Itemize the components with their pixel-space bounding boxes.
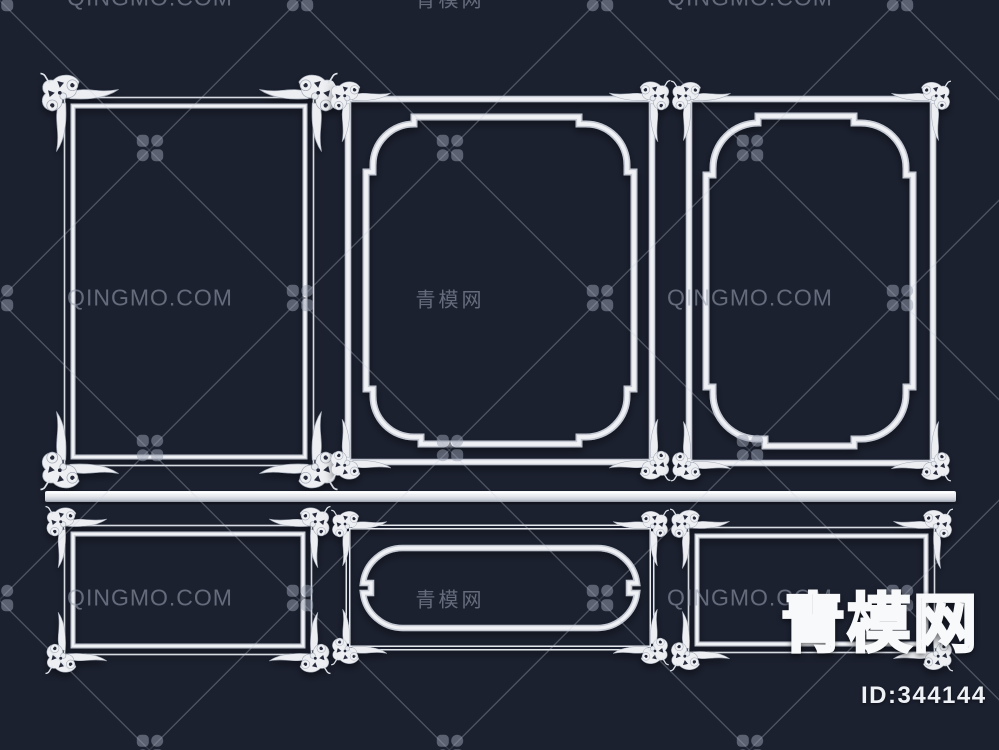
corner-ornament-icon <box>40 411 118 489</box>
corner-ornament-icon <box>891 421 951 481</box>
frame-bottom-left-small-rect <box>46 507 331 674</box>
corner-ornament-icon <box>259 73 337 151</box>
corner-ornament-icon <box>891 81 951 141</box>
corner-ornament-icon <box>330 419 391 480</box>
product-image: QINGMO.COM青模网QINGMO.COMQINGMO.COM青模网QING… <box>0 0 999 750</box>
site-logo-text: 青模网 <box>781 589 979 663</box>
frame-top-center-notched-panel <box>330 81 671 481</box>
corner-ornament-icon <box>269 507 330 568</box>
corner-ornament-icon <box>40 73 118 151</box>
corner-ornament-icon <box>893 509 953 569</box>
corner-ornament-icon <box>46 612 107 673</box>
corner-ornament-icon <box>46 507 107 568</box>
dado-rail-molding <box>45 491 956 502</box>
frame-top-right-notched-panel <box>671 81 951 481</box>
corner-ornament-icon <box>609 419 670 480</box>
corner-ornament-icon <box>671 421 731 481</box>
corner-ornament-icon <box>671 81 731 141</box>
corner-ornament-icon <box>670 509 730 569</box>
model-id-label: ID:344144 <box>861 682 987 710</box>
frame-top-left-large-rect <box>40 73 337 489</box>
corner-ornament-icon <box>609 81 670 142</box>
corner-ornament-icon <box>330 81 391 142</box>
corner-ornament-icon <box>269 612 330 673</box>
corner-ornament-icon <box>259 411 337 489</box>
frame-bottom-center-stadium-panel <box>331 510 669 665</box>
corner-ornament-icon <box>670 611 730 671</box>
